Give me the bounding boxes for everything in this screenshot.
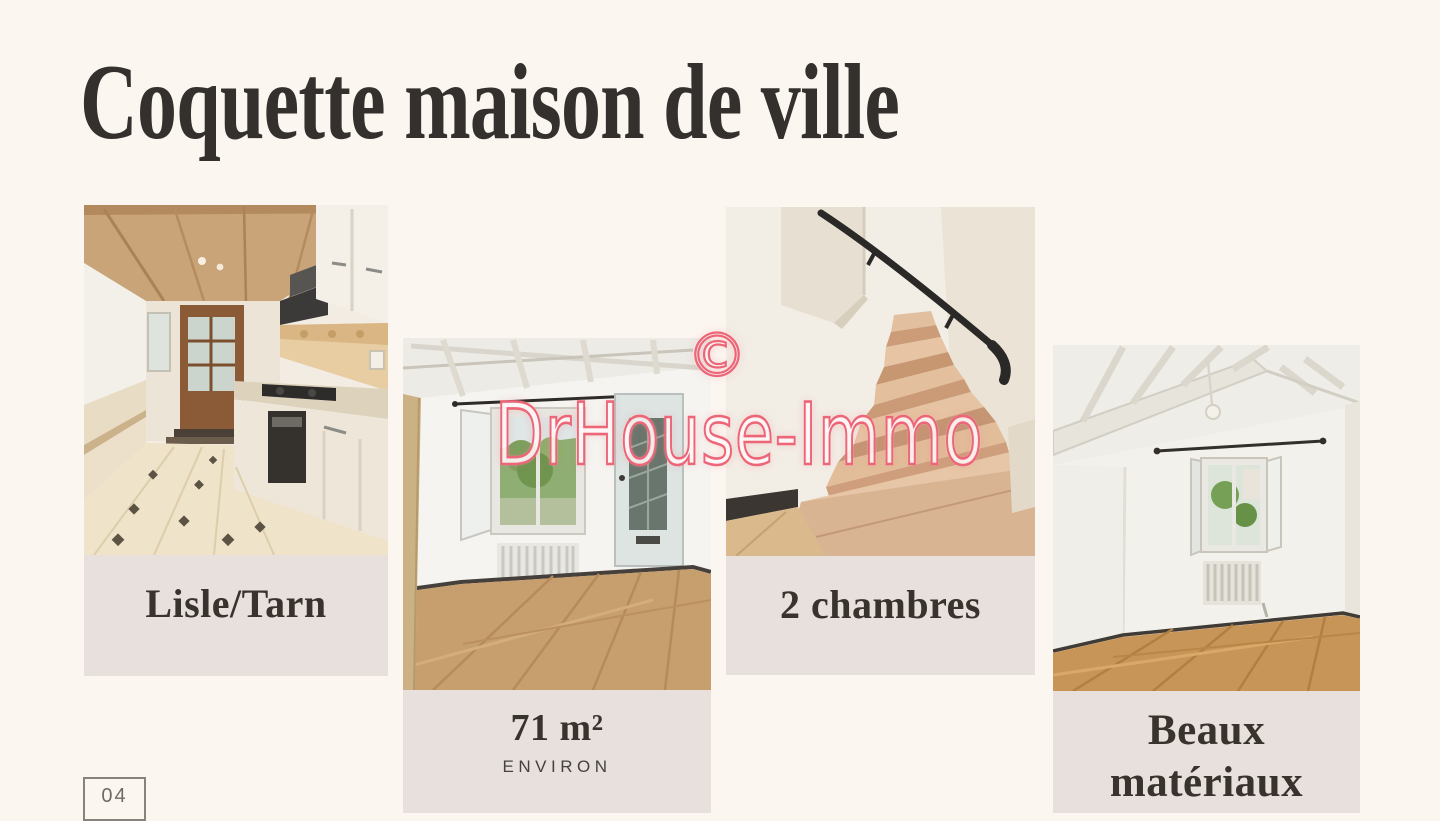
property-card-kitchen: Lisle/Tarn: [84, 205, 388, 676]
card-caption-bedrooms: 2 chambres: [726, 581, 1035, 628]
card-caption-materials: Beaux matériaux: [1082, 705, 1332, 810]
kitchen-photo-illustration: [84, 205, 388, 555]
caption-block: 2 chambres: [726, 556, 1035, 675]
bedroom-photo: [1053, 345, 1360, 691]
property-card-staircase: 2 chambres: [726, 207, 1035, 675]
caption-block: Beaux matériaux: [1053, 691, 1360, 813]
card-subcaption-environ: ENVIRON: [403, 757, 711, 777]
page-number-box: 04: [83, 777, 146, 821]
card-caption-location: Lisle/Tarn: [84, 580, 388, 627]
kitchen-photo: [84, 205, 388, 555]
card-caption-surface: 71 m²: [403, 706, 711, 750]
page-title: Coquette maison de ville: [80, 44, 899, 163]
bedroom-photo-illustration: [1053, 345, 1360, 691]
property-card-living-room: 71 m² ENVIRON: [403, 338, 711, 813]
staircase-photo: [726, 207, 1035, 556]
caption-block: 71 m² ENVIRON: [403, 690, 711, 813]
living-room-photo: [403, 338, 711, 690]
page-number: 04: [101, 785, 127, 807]
staircase-photo-illustration: [726, 207, 1035, 556]
property-card-bedroom: Beaux matériaux: [1053, 345, 1360, 813]
slide-page: { "page": { "title": "Coquette maison de…: [0, 0, 1440, 813]
caption-block: Lisle/Tarn: [84, 555, 388, 676]
living-room-photo-illustration: [403, 338, 711, 690]
